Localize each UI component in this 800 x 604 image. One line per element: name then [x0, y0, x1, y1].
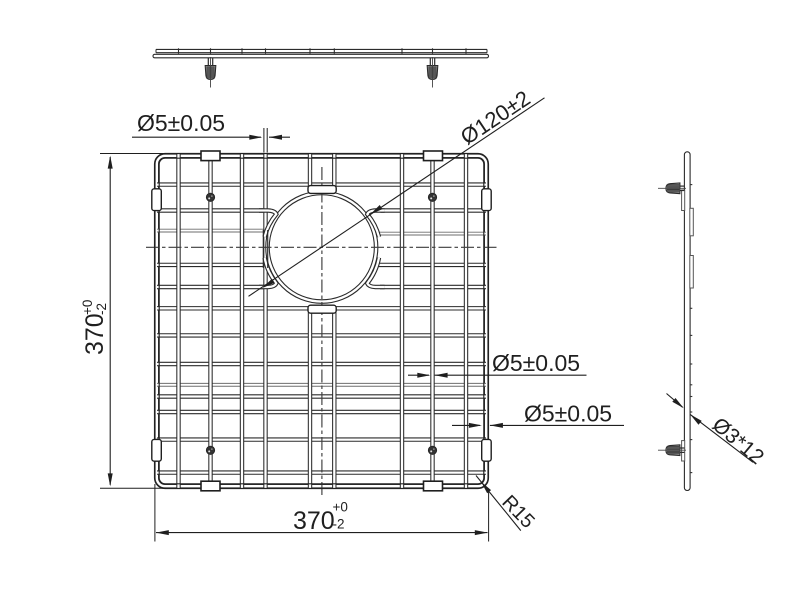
svg-text:Ø5±0.05: Ø5±0.05	[524, 401, 612, 427]
svg-text:+0: +0	[80, 300, 95, 315]
svg-text:370: 370	[81, 313, 109, 355]
svg-text:Ø5±0.05: Ø5±0.05	[137, 110, 225, 136]
svg-text:+0: +0	[333, 500, 348, 515]
svg-text:-2: -2	[94, 303, 109, 315]
svg-text:370: 370	[293, 507, 335, 535]
svg-text:Ø5±0.05: Ø5±0.05	[492, 350, 580, 376]
svg-text:-2: -2	[333, 517, 345, 532]
